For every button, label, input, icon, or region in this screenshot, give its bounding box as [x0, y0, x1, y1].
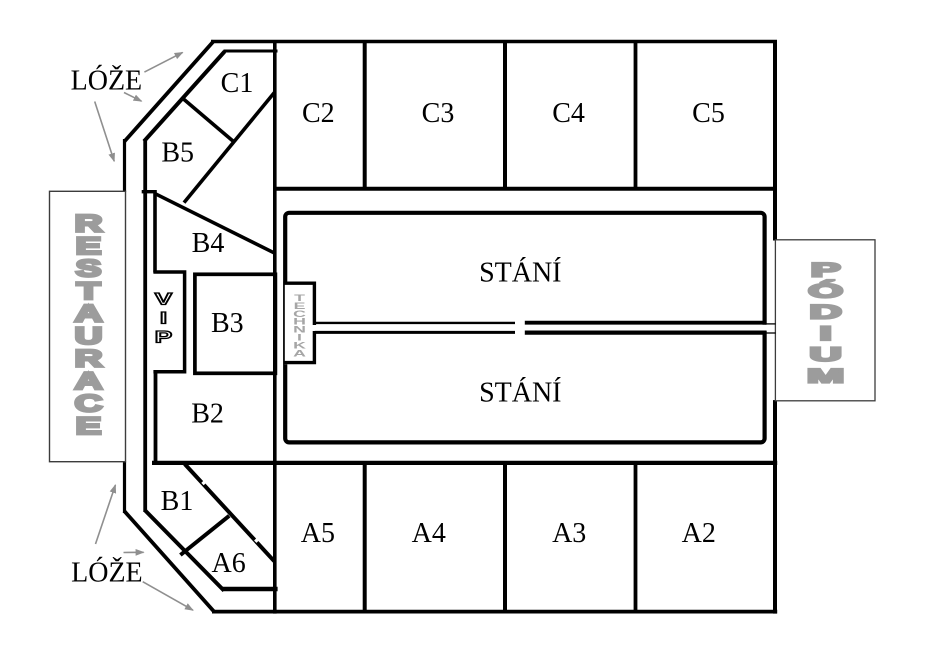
- svg-text:A3: A3: [552, 518, 586, 549]
- svg-text:LÓŽE: LÓŽE: [71, 66, 143, 97]
- svg-text:C1: C1: [221, 68, 254, 99]
- svg-text:B1: B1: [161, 486, 194, 517]
- svg-text:C4: C4: [552, 98, 585, 129]
- svg-text:B4: B4: [192, 228, 225, 259]
- svg-text:C5: C5: [692, 98, 725, 129]
- svg-text:A5: A5: [301, 518, 335, 549]
- svg-text:TECHNIKA: TECHNIKA: [293, 293, 307, 359]
- svg-text:B2: B2: [191, 399, 224, 430]
- svg-text:A2: A2: [682, 518, 716, 549]
- svg-text:STÁNÍ: STÁNÍ: [479, 257, 561, 288]
- svg-text:LÓŽE: LÓŽE: [71, 558, 143, 589]
- svg-text:C2: C2: [302, 98, 335, 129]
- svg-text:A6: A6: [211, 548, 245, 579]
- svg-text:VIP: VIP: [155, 290, 173, 347]
- svg-text:RESTAURACE: RESTAURACE: [75, 210, 103, 440]
- svg-text:A4: A4: [412, 518, 446, 549]
- svg-text:B5: B5: [161, 138, 194, 169]
- svg-text:STÁNÍ: STÁNÍ: [479, 377, 561, 408]
- svg-text:B3: B3: [211, 308, 244, 339]
- svg-text:C3: C3: [422, 98, 455, 129]
